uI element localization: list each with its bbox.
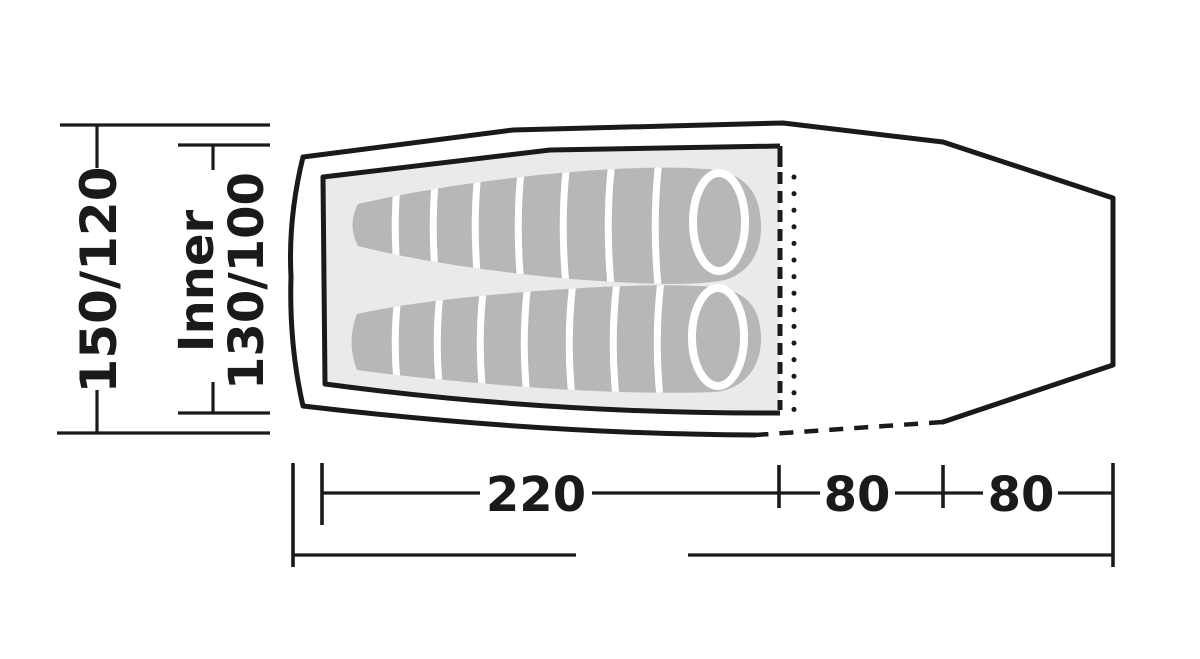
inner-width-label: 130/100: [219, 172, 275, 390]
inner-word-label: Inner: [169, 209, 225, 352]
rear-depth-label: 80: [988, 467, 1055, 523]
inner-length-label: 220: [486, 467, 586, 523]
tent-floorplan-canvas: 150/120 Inner 130/100 220 80 80: [0, 0, 1200, 659]
porch-depth-label: 80: [824, 467, 891, 523]
tent-dimension-diagram: 150/120 Inner 130/100 220 80 80: [0, 0, 1200, 659]
outer-width-label: 150/120: [70, 166, 128, 393]
